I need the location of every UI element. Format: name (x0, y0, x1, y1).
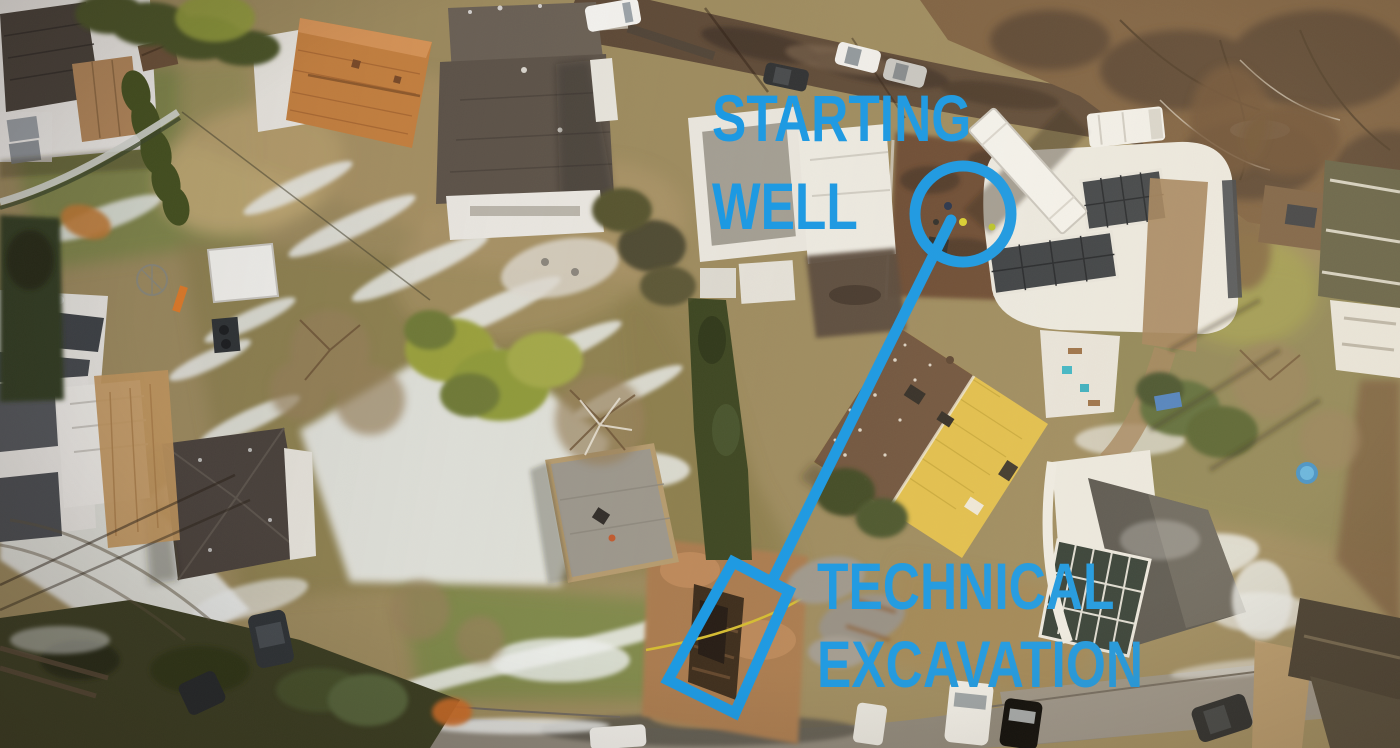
photo-grain (0, 0, 1400, 748)
starting-well-label-line1: STARTING (712, 74, 971, 162)
technical-excavation-label-line1: TECHNICAL (817, 547, 1143, 625)
technical-excavation-label: TECHNICAL EXCAVATION (817, 547, 1143, 703)
starting-well-label: STARTING WELL (712, 74, 971, 250)
aerial-photo (0, 0, 1400, 748)
starting-well-label-line2: WELL (712, 162, 971, 250)
technical-excavation-label-line2: EXCAVATION (817, 625, 1143, 703)
annotated-aerial-photo: STARTING WELL TECHNICAL EXCAVATION (0, 0, 1400, 748)
